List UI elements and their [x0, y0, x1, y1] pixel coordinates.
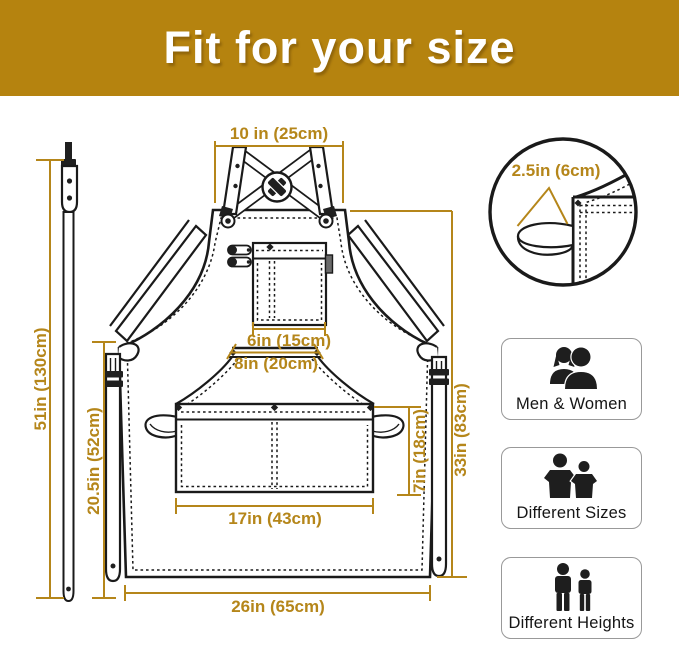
strap-adjuster — [429, 369, 449, 376]
dim-body-length: 33in (83cm) — [451, 383, 470, 477]
dim-bottom-width: 26in (65cm) — [231, 597, 325, 616]
page-title: Fit for your size — [163, 22, 515, 74]
feature-label: Different Heights — [509, 615, 635, 632]
dim-chest-pocket-width: 6in (15cm) — [247, 331, 331, 350]
different-sizes-icon — [543, 453, 601, 499]
dim-waist-pocket-width: 8in (20cm) — [234, 354, 318, 373]
apron-size-infographic: 2.5in (6cm) 10 in (25cm) 51in (130cm) 20… — [0, 0, 679, 645]
dim-front-pocket-width: 17in (43cm) — [228, 509, 322, 528]
neck-strap-drawing — [61, 142, 77, 601]
dim-top-width: 10 in (25cm) — [230, 124, 328, 143]
pocket-tab — [326, 255, 333, 273]
strap-detail-circle: 2.5in (6cm) — [490, 139, 644, 287]
dim-front-pocket-height: 7in (18cm) — [410, 409, 429, 493]
strap-rivet — [66, 587, 71, 592]
men-women-icon — [543, 344, 601, 390]
feature-card-different-heights: Different Heights — [501, 557, 642, 639]
strap-rivet — [67, 195, 72, 200]
front-pocket — [175, 404, 374, 492]
feature-label: Men & Women — [516, 396, 627, 413]
dim-neck-strap-length: 51in (130cm) — [31, 328, 50, 431]
dim-side-length: 20.5in (52cm) — [84, 407, 103, 515]
strap-adjuster — [103, 371, 123, 378]
feature-card-men-women: Men & Women — [501, 338, 642, 420]
header-banner: Fit for your size — [0, 0, 679, 96]
dim-strap-width: 2.5in (6cm) — [512, 161, 601, 180]
different-heights-icon — [547, 563, 597, 613]
feature-label: Different Sizes — [517, 505, 627, 522]
strap-rivet — [67, 178, 72, 183]
feature-card-different-sizes: Different Sizes — [501, 447, 642, 529]
chest-pocket — [253, 243, 333, 325]
fabric-loop — [518, 223, 573, 247]
apron-diagram: 2.5in (6cm) 10 in (25cm) 51in (130cm) 20… — [0, 0, 679, 645]
